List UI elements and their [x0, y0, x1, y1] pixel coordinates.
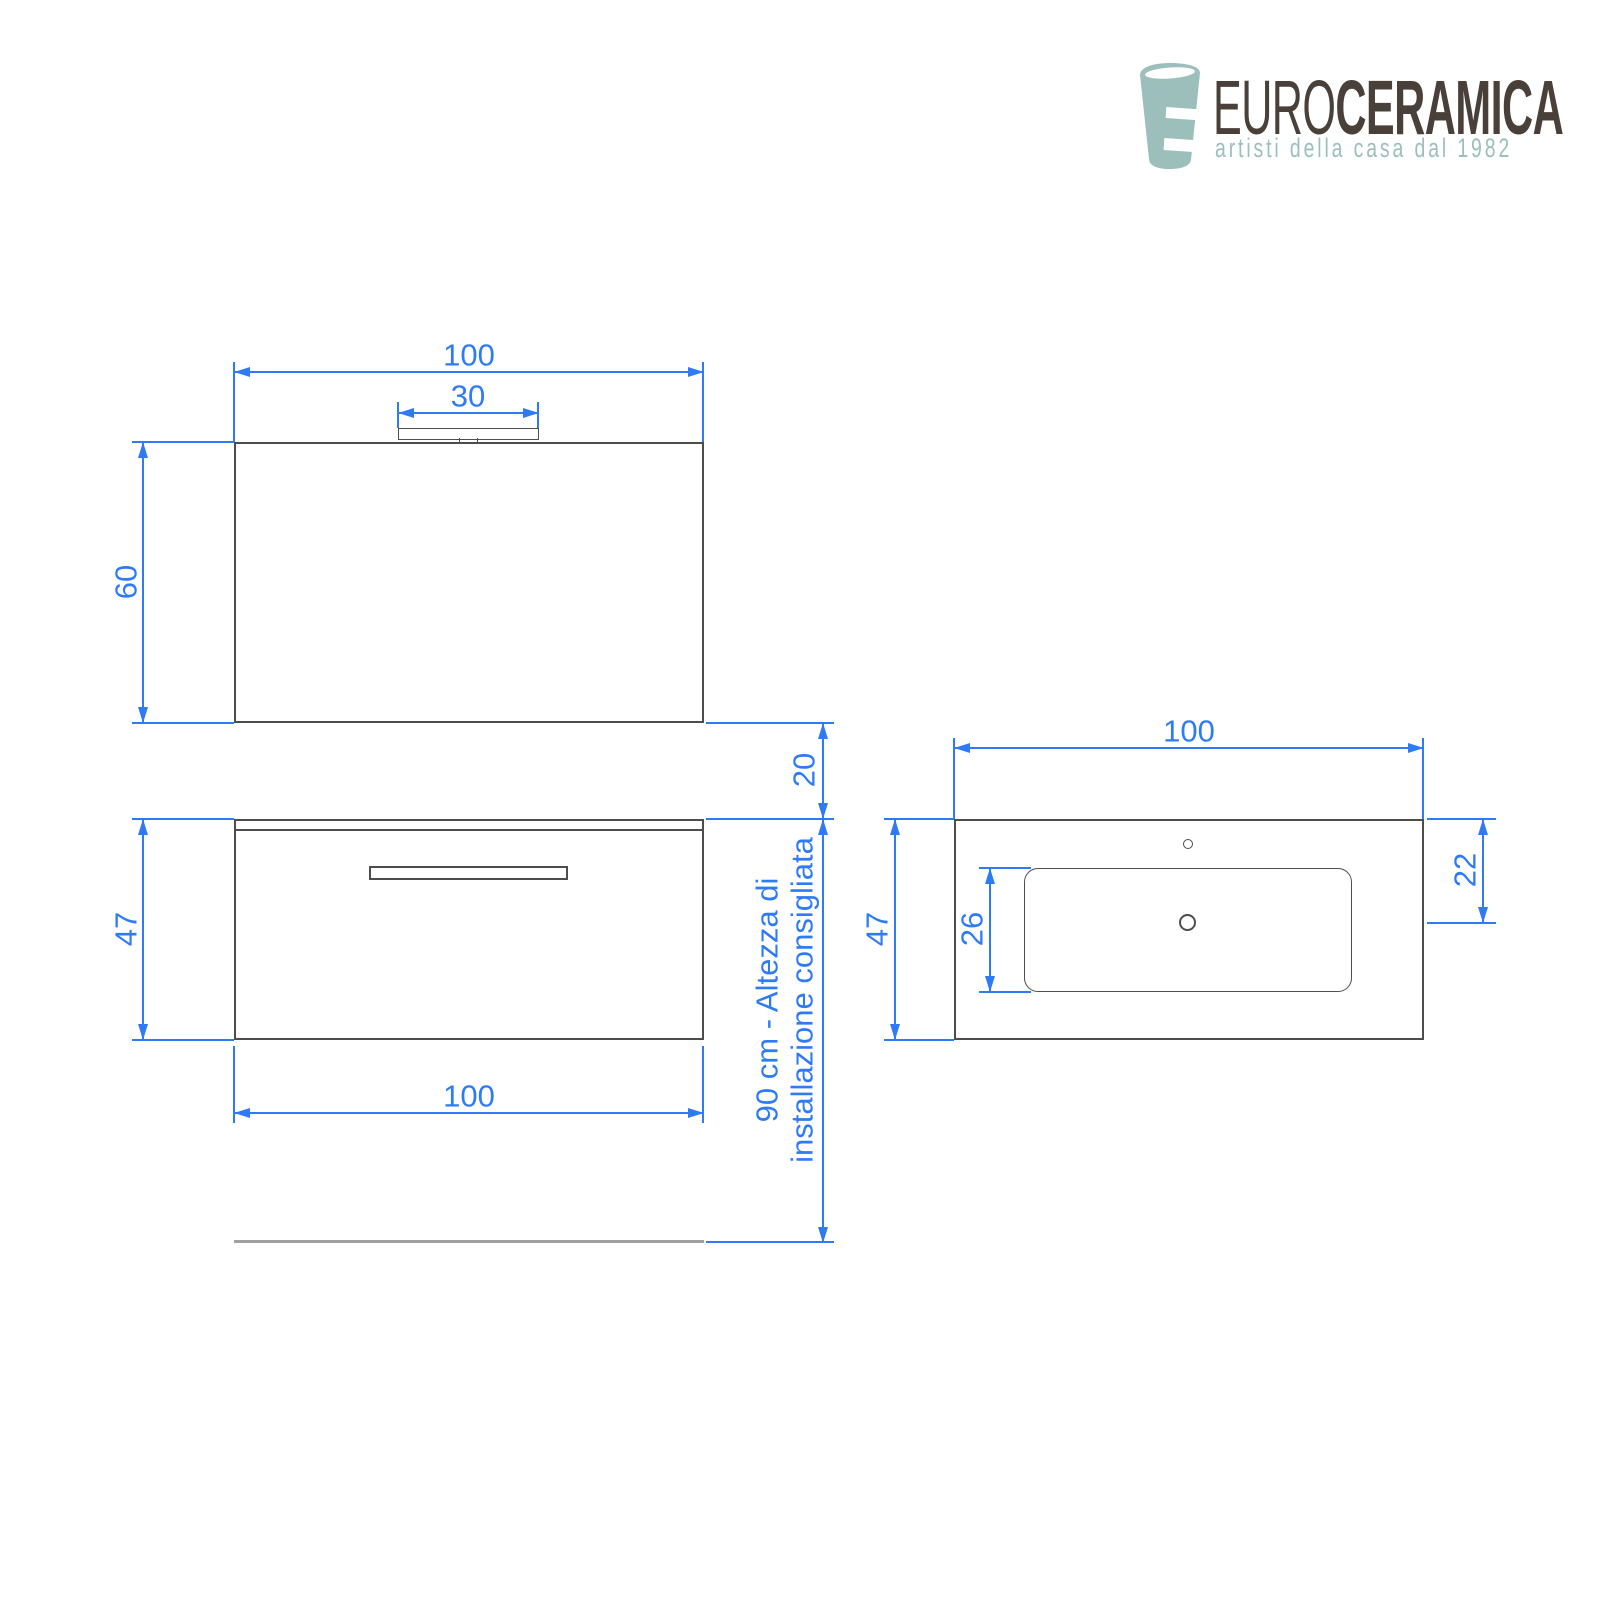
- cup-e-icon: [1138, 62, 1200, 170]
- dim-arrow-down: [818, 803, 828, 819]
- dim-label: 26: [957, 912, 988, 946]
- dim-label: 100: [443, 340, 495, 371]
- dim-arrow-down: [985, 976, 995, 992]
- install-note-line2: installazione consigliata: [787, 837, 818, 1163]
- dim-label: 30: [451, 381, 485, 412]
- dim-arrow-left: [954, 743, 970, 753]
- dim-ext-line: [706, 818, 834, 820]
- dim-arrow-up: [138, 819, 148, 835]
- drawer-handle: [369, 866, 568, 880]
- dim-arrow-right: [688, 1108, 704, 1118]
- dim-arrow-down: [138, 1024, 148, 1040]
- dim-label: 100: [443, 1081, 495, 1112]
- dim-label: 100: [1163, 716, 1215, 747]
- dim-label: 22: [1450, 853, 1481, 887]
- brand-tagline: artisti della casa dal 1982: [1215, 133, 1512, 164]
- dim-arrow-down: [138, 707, 148, 723]
- dim-arrow-up: [818, 723, 828, 739]
- install-note-line1: 90 cm - Altezza di: [752, 878, 783, 1123]
- dim-label: 20: [789, 753, 820, 787]
- dim-arrow-left: [234, 1108, 250, 1118]
- dim-arrow-down: [1478, 907, 1488, 923]
- dim-line: [822, 819, 824, 1243]
- dim-arrow-left: [398, 408, 414, 418]
- dim-arrow-down: [890, 1024, 900, 1040]
- dim-label: 60: [111, 565, 142, 599]
- dim-ext-line: [706, 1241, 834, 1243]
- dim-arrow-up: [818, 819, 828, 835]
- dim-arrow-up: [985, 868, 995, 884]
- dim-arrow-left: [234, 367, 250, 377]
- dim-ext-line: [706, 722, 834, 724]
- dim-arrow-right: [1408, 743, 1424, 753]
- dim-arrow-up: [890, 819, 900, 835]
- dim-arrow-right: [523, 408, 539, 418]
- cabinet-outline: [234, 819, 704, 1040]
- cabinet-top-strip-line: [234, 829, 704, 831]
- dim-label: 47: [862, 912, 893, 946]
- spec-sheet-canvas: EUROCERAMICA artisti della casa dal 1982…: [0, 0, 1600, 1600]
- dim-arrow-up: [138, 442, 148, 458]
- drain-hole: [1179, 914, 1196, 931]
- dim-label: 47: [111, 912, 142, 946]
- floor-line: [234, 1240, 704, 1243]
- mirror-outline: [234, 442, 704, 723]
- dim-arrow-up: [1478, 819, 1488, 835]
- dim-arrow-right: [688, 367, 704, 377]
- faucet-hole: [1183, 839, 1193, 849]
